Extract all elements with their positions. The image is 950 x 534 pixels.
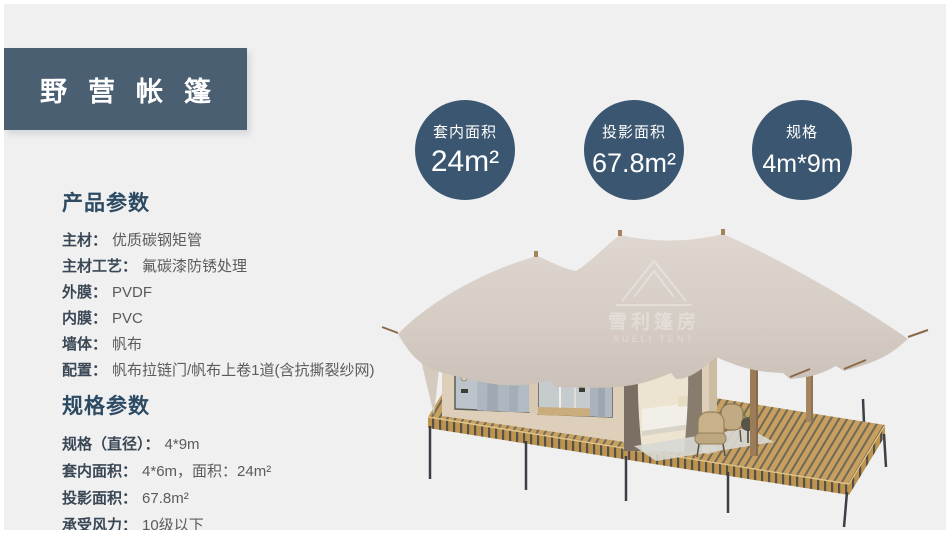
badge-size: 规格 4m*9m	[752, 100, 852, 200]
wall-fixture	[461, 389, 468, 393]
badge-label: 规格	[752, 121, 852, 142]
param-row: 主材工艺：氟碳漆防锈处理	[62, 254, 375, 280]
badge-projection-area: 投影面积 67.8m²	[584, 100, 684, 200]
param-row: 内膜：PVC	[62, 306, 375, 332]
param-row: 规格（直径）：4*9m	[62, 431, 271, 458]
badge-value: 67.8m²	[584, 148, 684, 179]
spec-params-section: 规格参数 规格（直径）：4*9m 套内面积：4*6m，面积：24m² 投影面积：…	[62, 390, 271, 530]
page-background: 野营帐篷 套内面积 24m² 投影面积 67.8m² 规格 4m*9m 产品参数…	[4, 4, 946, 530]
param-row: 承受风力：10级以下	[62, 512, 271, 530]
watermark-text-en: XUELI TENT	[613, 334, 695, 344]
watermark-text-cn: 雪利篷房	[608, 310, 700, 333]
section-heading: 规格参数	[62, 390, 271, 420]
param-row: 套内面积：4*6m，面积：24m²	[62, 458, 271, 485]
param-row: 投影面积：67.8m²	[62, 485, 271, 512]
badge-label: 投影面积	[584, 121, 684, 142]
param-row: 墙体：帆布	[62, 332, 375, 358]
badge-label: 套内面积	[415, 121, 515, 142]
param-row: 外膜：PVDF	[62, 280, 375, 306]
tent-product-image: 雪利篷房 XUELI TENT	[376, 209, 946, 530]
badge-value: 24m²	[415, 145, 515, 179]
param-row: 配置：帆布拉链门/帆布上卷1道(含抗撕裂纱网)	[62, 358, 375, 384]
badge-value: 4m*9m	[752, 150, 852, 179]
param-row: 主材：优质碳钢矩管	[62, 228, 375, 254]
section-heading: 产品参数	[62, 187, 375, 217]
title-banner: 野营帐篷	[4, 48, 247, 130]
product-params-section: 产品参数 主材：优质碳钢矩管 主材工艺：氟碳漆防锈处理 外膜：PVDF 内膜：P…	[62, 187, 375, 384]
badge-inner-area: 套内面积 24m²	[415, 100, 515, 200]
page-title: 野营帐篷	[19, 70, 232, 109]
tent-roof: 雪利篷房 XUELI TENT	[382, 229, 928, 388]
